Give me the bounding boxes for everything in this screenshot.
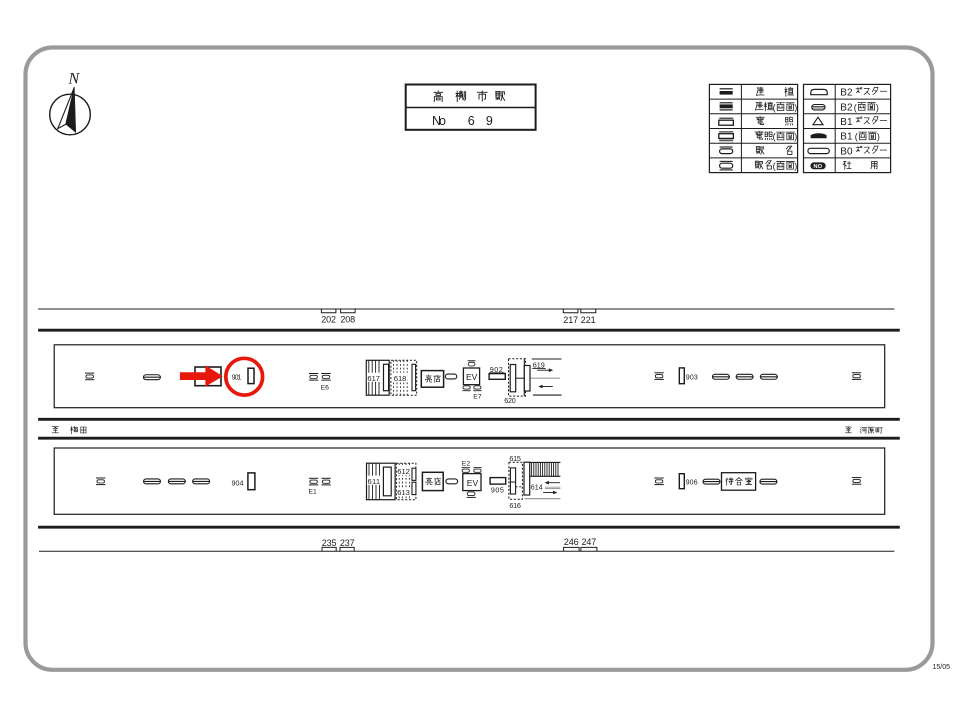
svg-text:617: 617 xyxy=(367,374,380,383)
svg-text:E2: E2 xyxy=(462,461,471,468)
svg-text:E1: E1 xyxy=(309,489,318,496)
svg-text:(: ( xyxy=(773,102,776,112)
svg-text:B2: B2 xyxy=(840,88,853,99)
svg-text:B1: B1 xyxy=(840,132,853,143)
svg-text:217: 217 xyxy=(563,315,578,325)
svg-text:15/05: 15/05 xyxy=(933,664,951,671)
svg-text:208: 208 xyxy=(340,315,355,325)
svg-text:202: 202 xyxy=(321,315,336,325)
svg-text:616: 616 xyxy=(509,501,521,510)
svg-text:906: 906 xyxy=(686,480,698,487)
svg-text:613: 613 xyxy=(397,488,410,497)
svg-text:618: 618 xyxy=(394,374,407,383)
svg-text:(: ( xyxy=(854,102,857,112)
svg-text:B0: B0 xyxy=(840,146,853,157)
svg-text:614: 614 xyxy=(531,483,543,492)
svg-text:EV: EV xyxy=(467,478,479,488)
svg-text:6: 6 xyxy=(468,114,475,128)
svg-text:): ) xyxy=(877,132,880,142)
svg-text:N: N xyxy=(68,71,81,88)
svg-text:B1: B1 xyxy=(840,117,853,128)
svg-text:No: No xyxy=(432,114,446,128)
svg-text:620: 620 xyxy=(504,396,516,405)
svg-text:247: 247 xyxy=(582,537,597,547)
svg-text:246: 246 xyxy=(564,537,579,547)
svg-text:(: ( xyxy=(773,132,776,142)
svg-text:905: 905 xyxy=(491,485,504,494)
svg-text:NO: NO xyxy=(813,164,822,170)
svg-text:221: 221 xyxy=(581,315,596,325)
svg-text:903: 903 xyxy=(686,375,698,382)
svg-text:237: 237 xyxy=(340,538,355,548)
svg-text:B2: B2 xyxy=(840,102,853,113)
svg-text:904: 904 xyxy=(232,479,244,488)
svg-text:615: 615 xyxy=(509,454,521,463)
svg-text:9: 9 xyxy=(486,114,493,128)
svg-text:): ) xyxy=(794,132,797,142)
svg-text:611: 611 xyxy=(368,477,381,486)
svg-text:E7: E7 xyxy=(473,394,482,401)
svg-text:235: 235 xyxy=(322,538,337,548)
svg-text:): ) xyxy=(794,161,797,171)
svg-text:612: 612 xyxy=(397,467,410,476)
svg-text:901: 901 xyxy=(232,374,242,381)
svg-text:): ) xyxy=(794,102,797,112)
svg-text:E6: E6 xyxy=(321,384,330,391)
svg-text:(: ( xyxy=(855,132,858,142)
svg-text:EV: EV xyxy=(466,372,478,382)
svg-text:(: ( xyxy=(773,161,776,171)
svg-text:): ) xyxy=(876,102,879,112)
